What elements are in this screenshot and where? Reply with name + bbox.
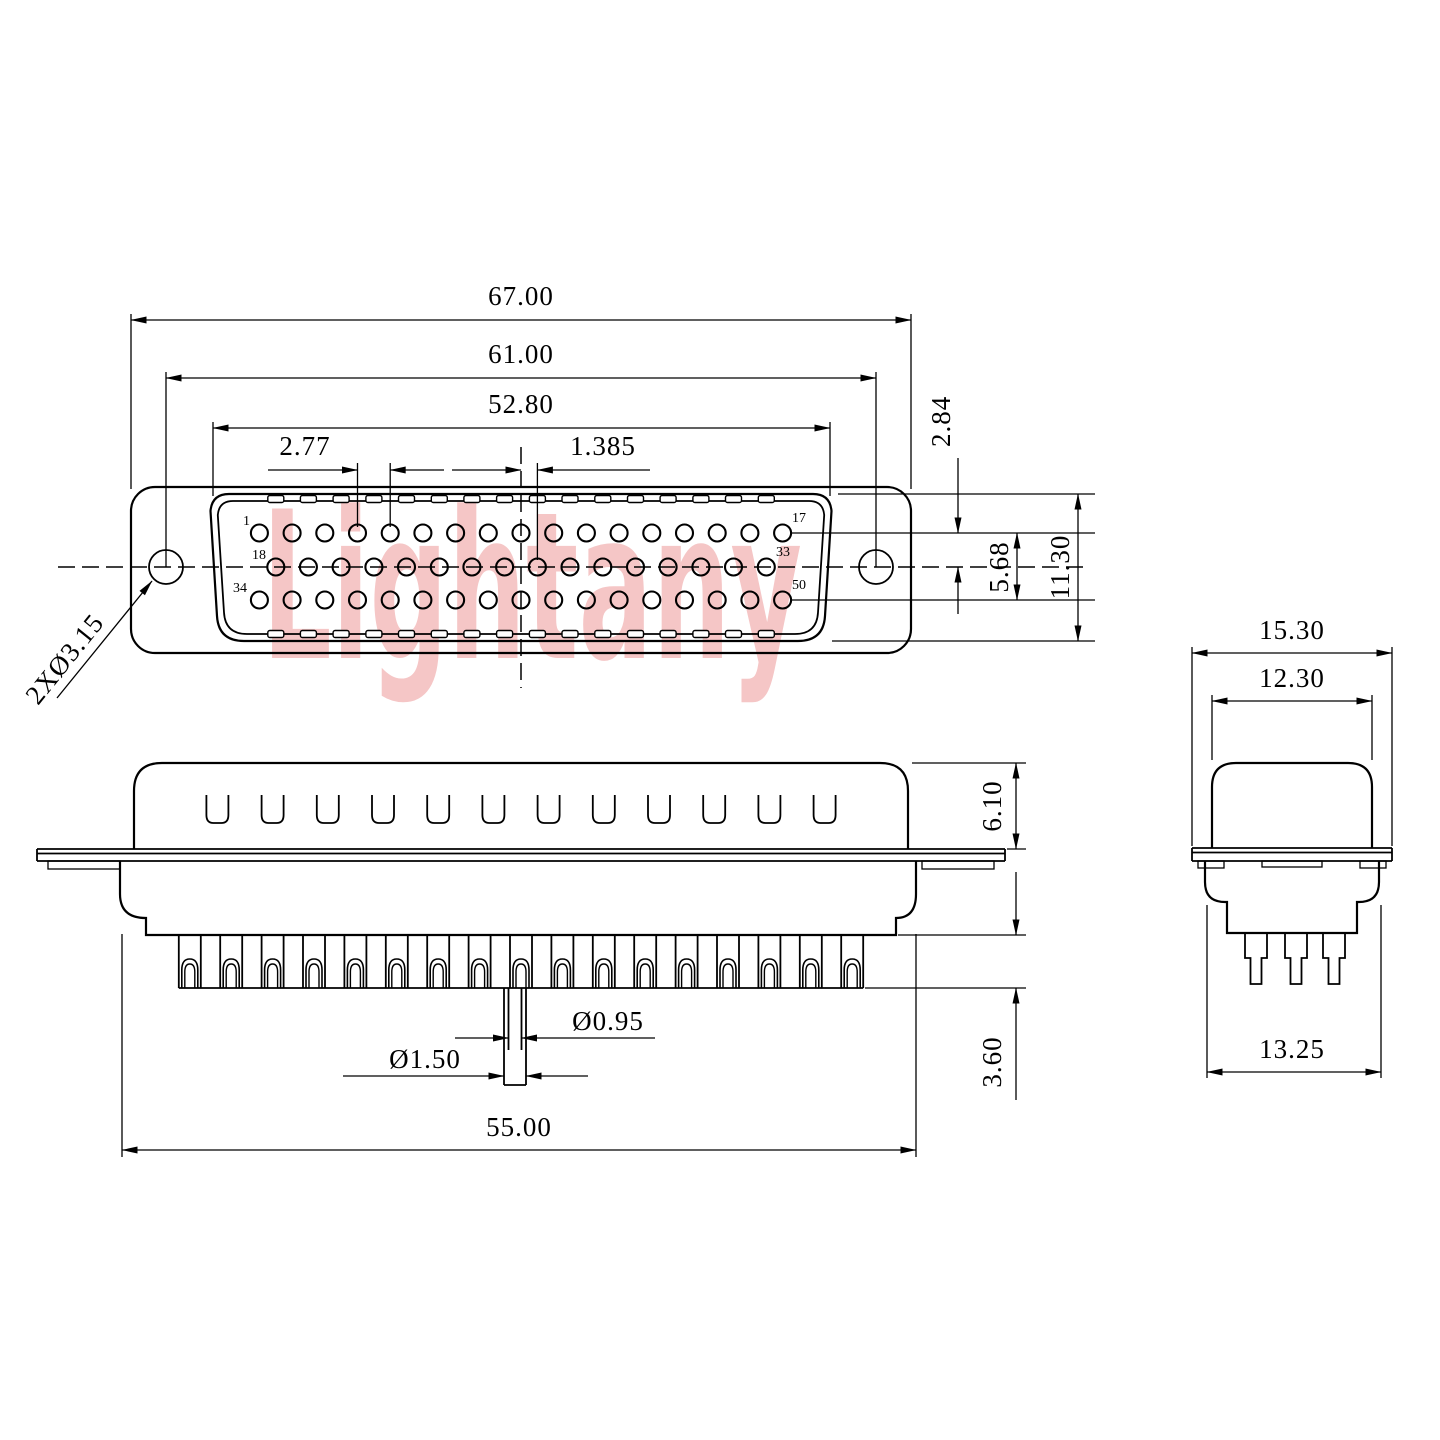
svg-text:3.60: 3.60 xyxy=(977,1036,1007,1087)
contact-slot xyxy=(758,795,780,823)
contact-slot xyxy=(427,795,449,823)
solder-pin xyxy=(676,935,698,988)
shell-guide-tick xyxy=(366,496,382,503)
shell-guide-tick xyxy=(758,496,774,503)
svg-text:6.10: 6.10 xyxy=(977,780,1007,831)
dim-row1-to-row3: 5.68 xyxy=(984,533,1017,600)
watermark-text: Lightany xyxy=(262,469,802,707)
shell-guide-tick xyxy=(693,496,709,503)
svg-text:1.385: 1.385 xyxy=(570,431,636,461)
shell-guide-tick xyxy=(464,631,480,638)
dim-shell-width: 52.80 xyxy=(213,389,830,428)
solder-pin xyxy=(551,935,573,988)
shell-guide-tick xyxy=(693,631,709,638)
svg-text:15.30: 15.30 xyxy=(1259,615,1325,645)
pin-label-50: 50 xyxy=(792,578,806,593)
shell-guide-tick xyxy=(660,631,676,638)
end-body-notch xyxy=(1262,861,1322,867)
svg-text:2.84: 2.84 xyxy=(926,396,956,447)
contact-slot xyxy=(482,795,504,823)
shell-guide-tick xyxy=(431,496,447,503)
contact-slot-row xyxy=(206,795,835,823)
end-body-outline xyxy=(1205,861,1379,933)
shell-guide-tick xyxy=(562,496,578,503)
technical-drawing-page: Lightany 1 17 18 33 34 50 xyxy=(0,0,1440,1440)
side-body-outline xyxy=(120,861,916,935)
shell-guide-tick xyxy=(431,631,447,638)
contact-slot xyxy=(372,795,394,823)
solder-pin xyxy=(510,935,532,988)
shell-guide-tick xyxy=(529,631,545,638)
dim-pin-diameter: Ø0.95 xyxy=(455,1006,655,1038)
solder-pin xyxy=(386,935,408,988)
end-extension-lines xyxy=(1192,647,1392,1078)
solder-pin xyxy=(427,935,449,988)
contact-slot xyxy=(703,795,725,823)
end-view: 15.30 12.30 13.25 xyxy=(1192,615,1392,1078)
svg-text:12.30: 12.30 xyxy=(1259,663,1325,693)
shell-guide-tick xyxy=(497,631,513,638)
svg-text:2.77: 2.77 xyxy=(279,431,330,461)
dim-shell-height: 11.30 xyxy=(1045,494,1078,641)
svg-text:55.00: 55.00 xyxy=(486,1112,552,1142)
shell-guide-tick xyxy=(660,496,676,503)
dim-pin-tail-length: 3.60 xyxy=(977,872,1016,1100)
dim-side-shell-height: 6.10 xyxy=(977,763,1016,849)
dim-overall-width: 67.00 xyxy=(131,281,911,320)
center-pin-lead xyxy=(504,988,526,1085)
dim-end-body-width: 13.25 xyxy=(1207,1034,1381,1072)
contact-slot xyxy=(538,795,560,823)
shell-guide-tick xyxy=(595,496,611,503)
mounting-hole-callout: 2XØ3.15 xyxy=(19,581,152,710)
contact-slot xyxy=(262,795,284,823)
end-flange-plate xyxy=(1192,848,1392,868)
solder-pin xyxy=(593,935,615,988)
svg-text:Ø1.50: Ø1.50 xyxy=(389,1044,461,1074)
dim-hole-spacing: 61.00 xyxy=(166,339,876,378)
svg-text:Ø0.95: Ø0.95 xyxy=(572,1006,644,1036)
shell-guide-tick xyxy=(726,631,742,638)
svg-text:52.80: 52.80 xyxy=(488,389,554,419)
pin-label-1: 1 xyxy=(243,514,250,529)
dim-half-pitch: 1.385 xyxy=(452,431,650,470)
shell-guide-tick xyxy=(595,631,611,638)
dim-pin-pitch: 2.77 xyxy=(268,431,444,470)
shell-guide-tick xyxy=(268,631,284,638)
contact-slot xyxy=(206,795,228,823)
dim-pin-base-diameter: Ø1.50 xyxy=(343,1044,588,1076)
solder-pin xyxy=(179,935,201,988)
shell-guide-tick xyxy=(562,631,578,638)
contact-slot xyxy=(648,795,670,823)
shell-guide-tick xyxy=(464,496,480,503)
solder-pin xyxy=(220,935,242,988)
svg-text:11.30: 11.30 xyxy=(1045,535,1075,600)
svg-text:2XØ3.15: 2XØ3.15 xyxy=(19,608,109,710)
side-shell-outline xyxy=(134,763,908,849)
dim-body-width: 55.00 xyxy=(122,1112,916,1150)
shell-guide-tick xyxy=(628,631,644,638)
solder-pin-row xyxy=(179,935,863,988)
shell-guide-tick xyxy=(366,631,382,638)
side-flange-plate xyxy=(37,849,1005,869)
solder-pin xyxy=(717,935,739,988)
shell-guide-tick xyxy=(628,496,644,503)
svg-text:13.25: 13.25 xyxy=(1259,1034,1325,1064)
end-shell-outline xyxy=(1212,763,1372,848)
pin-label-17: 17 xyxy=(792,511,806,526)
solder-pin xyxy=(800,935,822,988)
shell-guide-tick xyxy=(399,631,415,638)
pin-label-18: 18 xyxy=(252,548,266,563)
shell-guide-tick xyxy=(300,496,316,503)
pin-label-34: 34 xyxy=(233,581,247,596)
shell-guide-tick xyxy=(333,496,349,503)
side-view: 6.10 3.60 Ø0.95 Ø1.50 55.00 xyxy=(37,763,1026,1157)
svg-text:61.00: 61.00 xyxy=(488,339,554,369)
shell-guide-tick xyxy=(399,496,415,503)
solder-pin xyxy=(634,935,656,988)
shell-guide-tick xyxy=(268,496,284,503)
connector-engineering-drawing: Lightany 1 17 18 33 34 50 xyxy=(0,0,1440,1440)
dim-row-spacing: 2.84 xyxy=(926,396,958,614)
solder-pin xyxy=(469,935,491,988)
end-pins xyxy=(1245,933,1345,984)
shell-guide-tick xyxy=(333,631,349,638)
svg-text:5.68: 5.68 xyxy=(984,541,1014,592)
solder-pin xyxy=(758,935,780,988)
pin-label-33: 33 xyxy=(776,545,790,560)
solder-pin xyxy=(262,935,284,988)
solder-pin xyxy=(841,935,863,988)
contact-slot xyxy=(814,795,836,823)
contact-slot xyxy=(593,795,615,823)
svg-text:67.00: 67.00 xyxy=(488,281,554,311)
shell-guide-tick xyxy=(726,496,742,503)
solder-pin xyxy=(344,935,366,988)
contact-slot xyxy=(317,795,339,823)
shell-guide-tick xyxy=(758,631,774,638)
shell-guide-tick xyxy=(300,631,316,638)
shell-guide-tick xyxy=(497,496,513,503)
dim-end-flange-width: 15.30 xyxy=(1192,615,1392,653)
solder-pin xyxy=(303,935,325,988)
dim-end-shell-width: 12.30 xyxy=(1212,663,1372,701)
